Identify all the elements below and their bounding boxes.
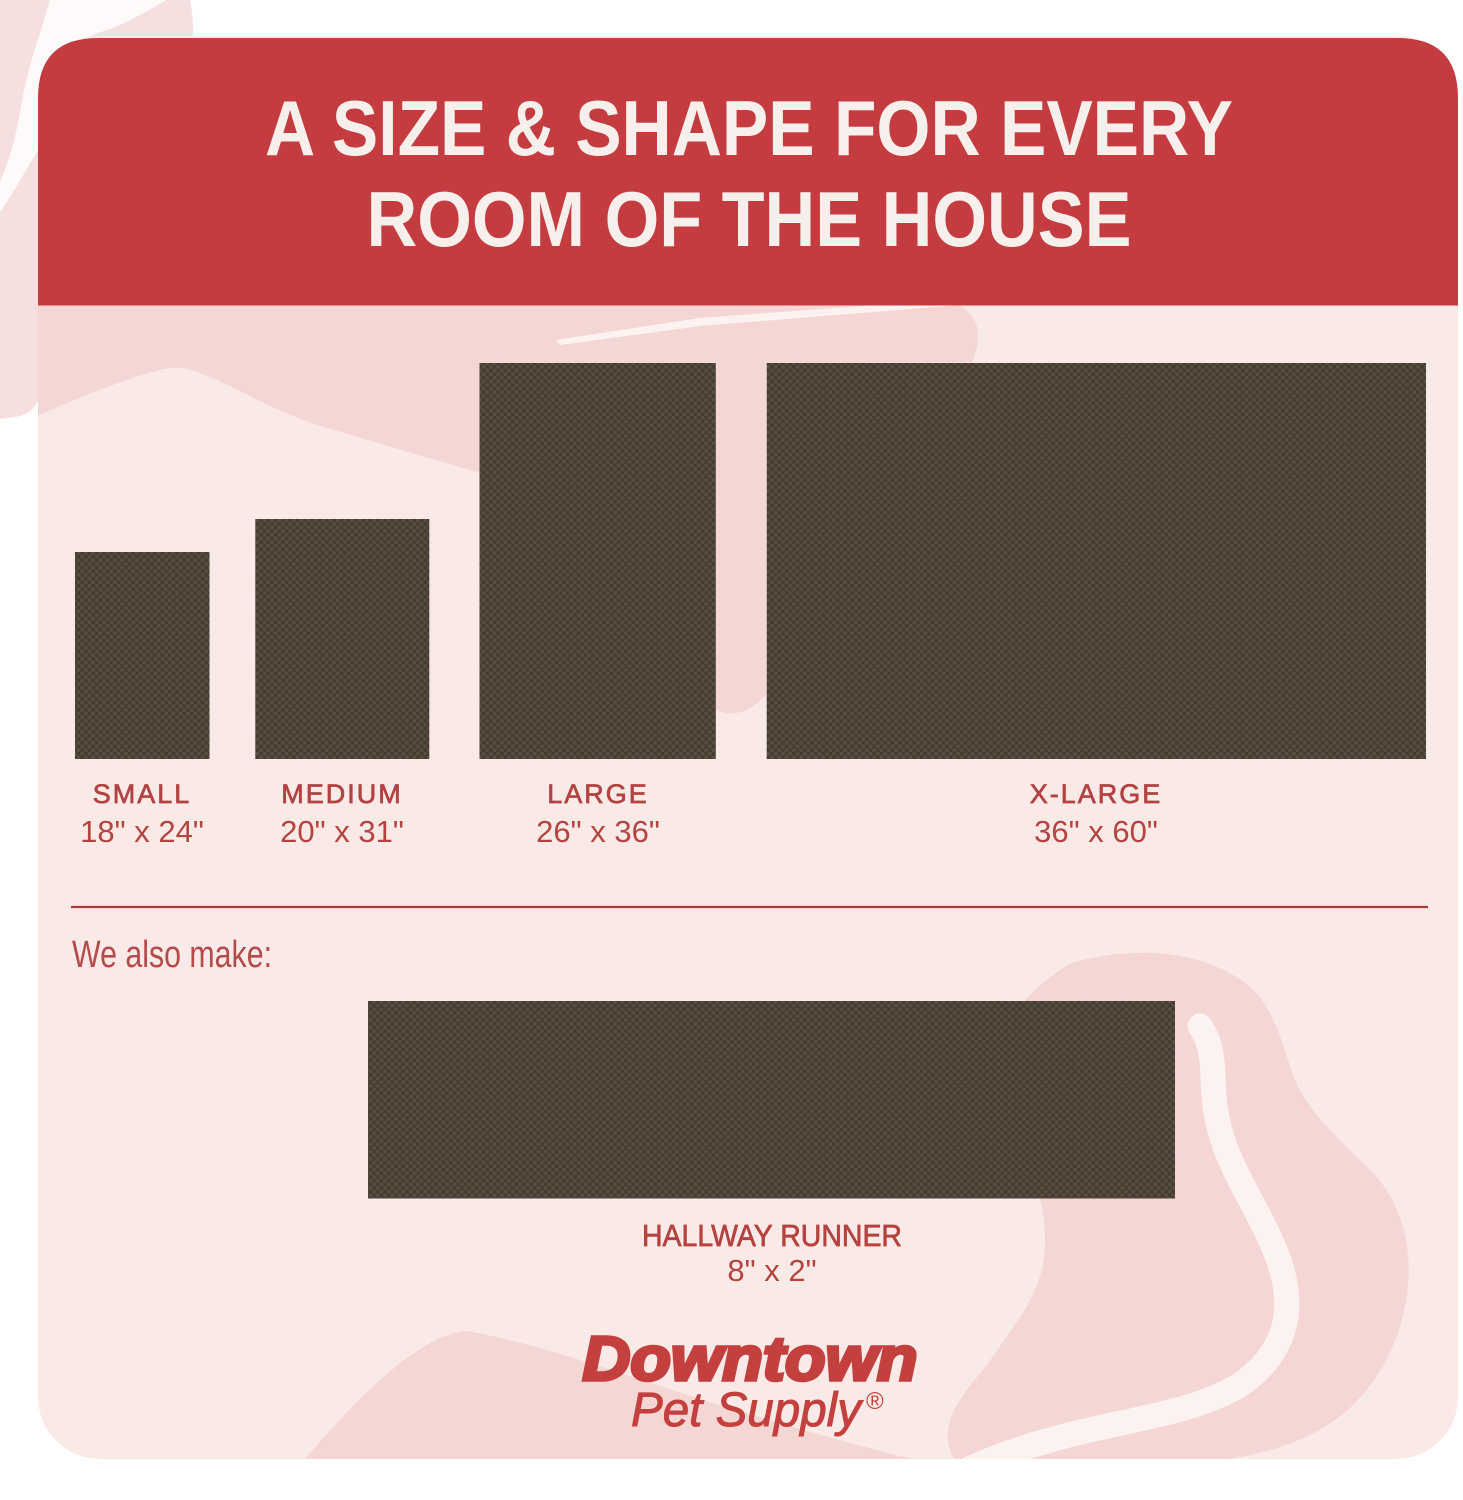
svg-text:SMALL: SMALL [93,779,192,809]
svg-text:36" x 60": 36" x 60" [1034,814,1158,849]
svg-text:8" x 2": 8" x 2" [727,1253,816,1288]
svg-text:26" x 36": 26" x 36" [536,814,660,849]
svg-text:20" x 31": 20" x 31" [280,814,404,849]
svg-text:®: ® [866,1388,884,1415]
svg-text:18" x 24": 18" x 24" [80,814,204,849]
svg-text:We also make:: We also make: [72,934,272,976]
svg-text:X-LARGE: X-LARGE [1030,779,1163,809]
svg-text:Pet Supply: Pet Supply [631,1384,864,1437]
svg-text:LARGE: LARGE [547,779,649,809]
svg-text:MEDIUM: MEDIUM [281,779,403,809]
svg-text:HALLWAY RUNNER: HALLWAY RUNNER [642,1218,902,1253]
svg-text:ROOM OF THE HOUSE: ROOM OF THE HOUSE [367,175,1132,263]
svg-text:A SIZE & SHAPE FOR EVERY: A SIZE & SHAPE FOR EVERY [265,84,1233,172]
